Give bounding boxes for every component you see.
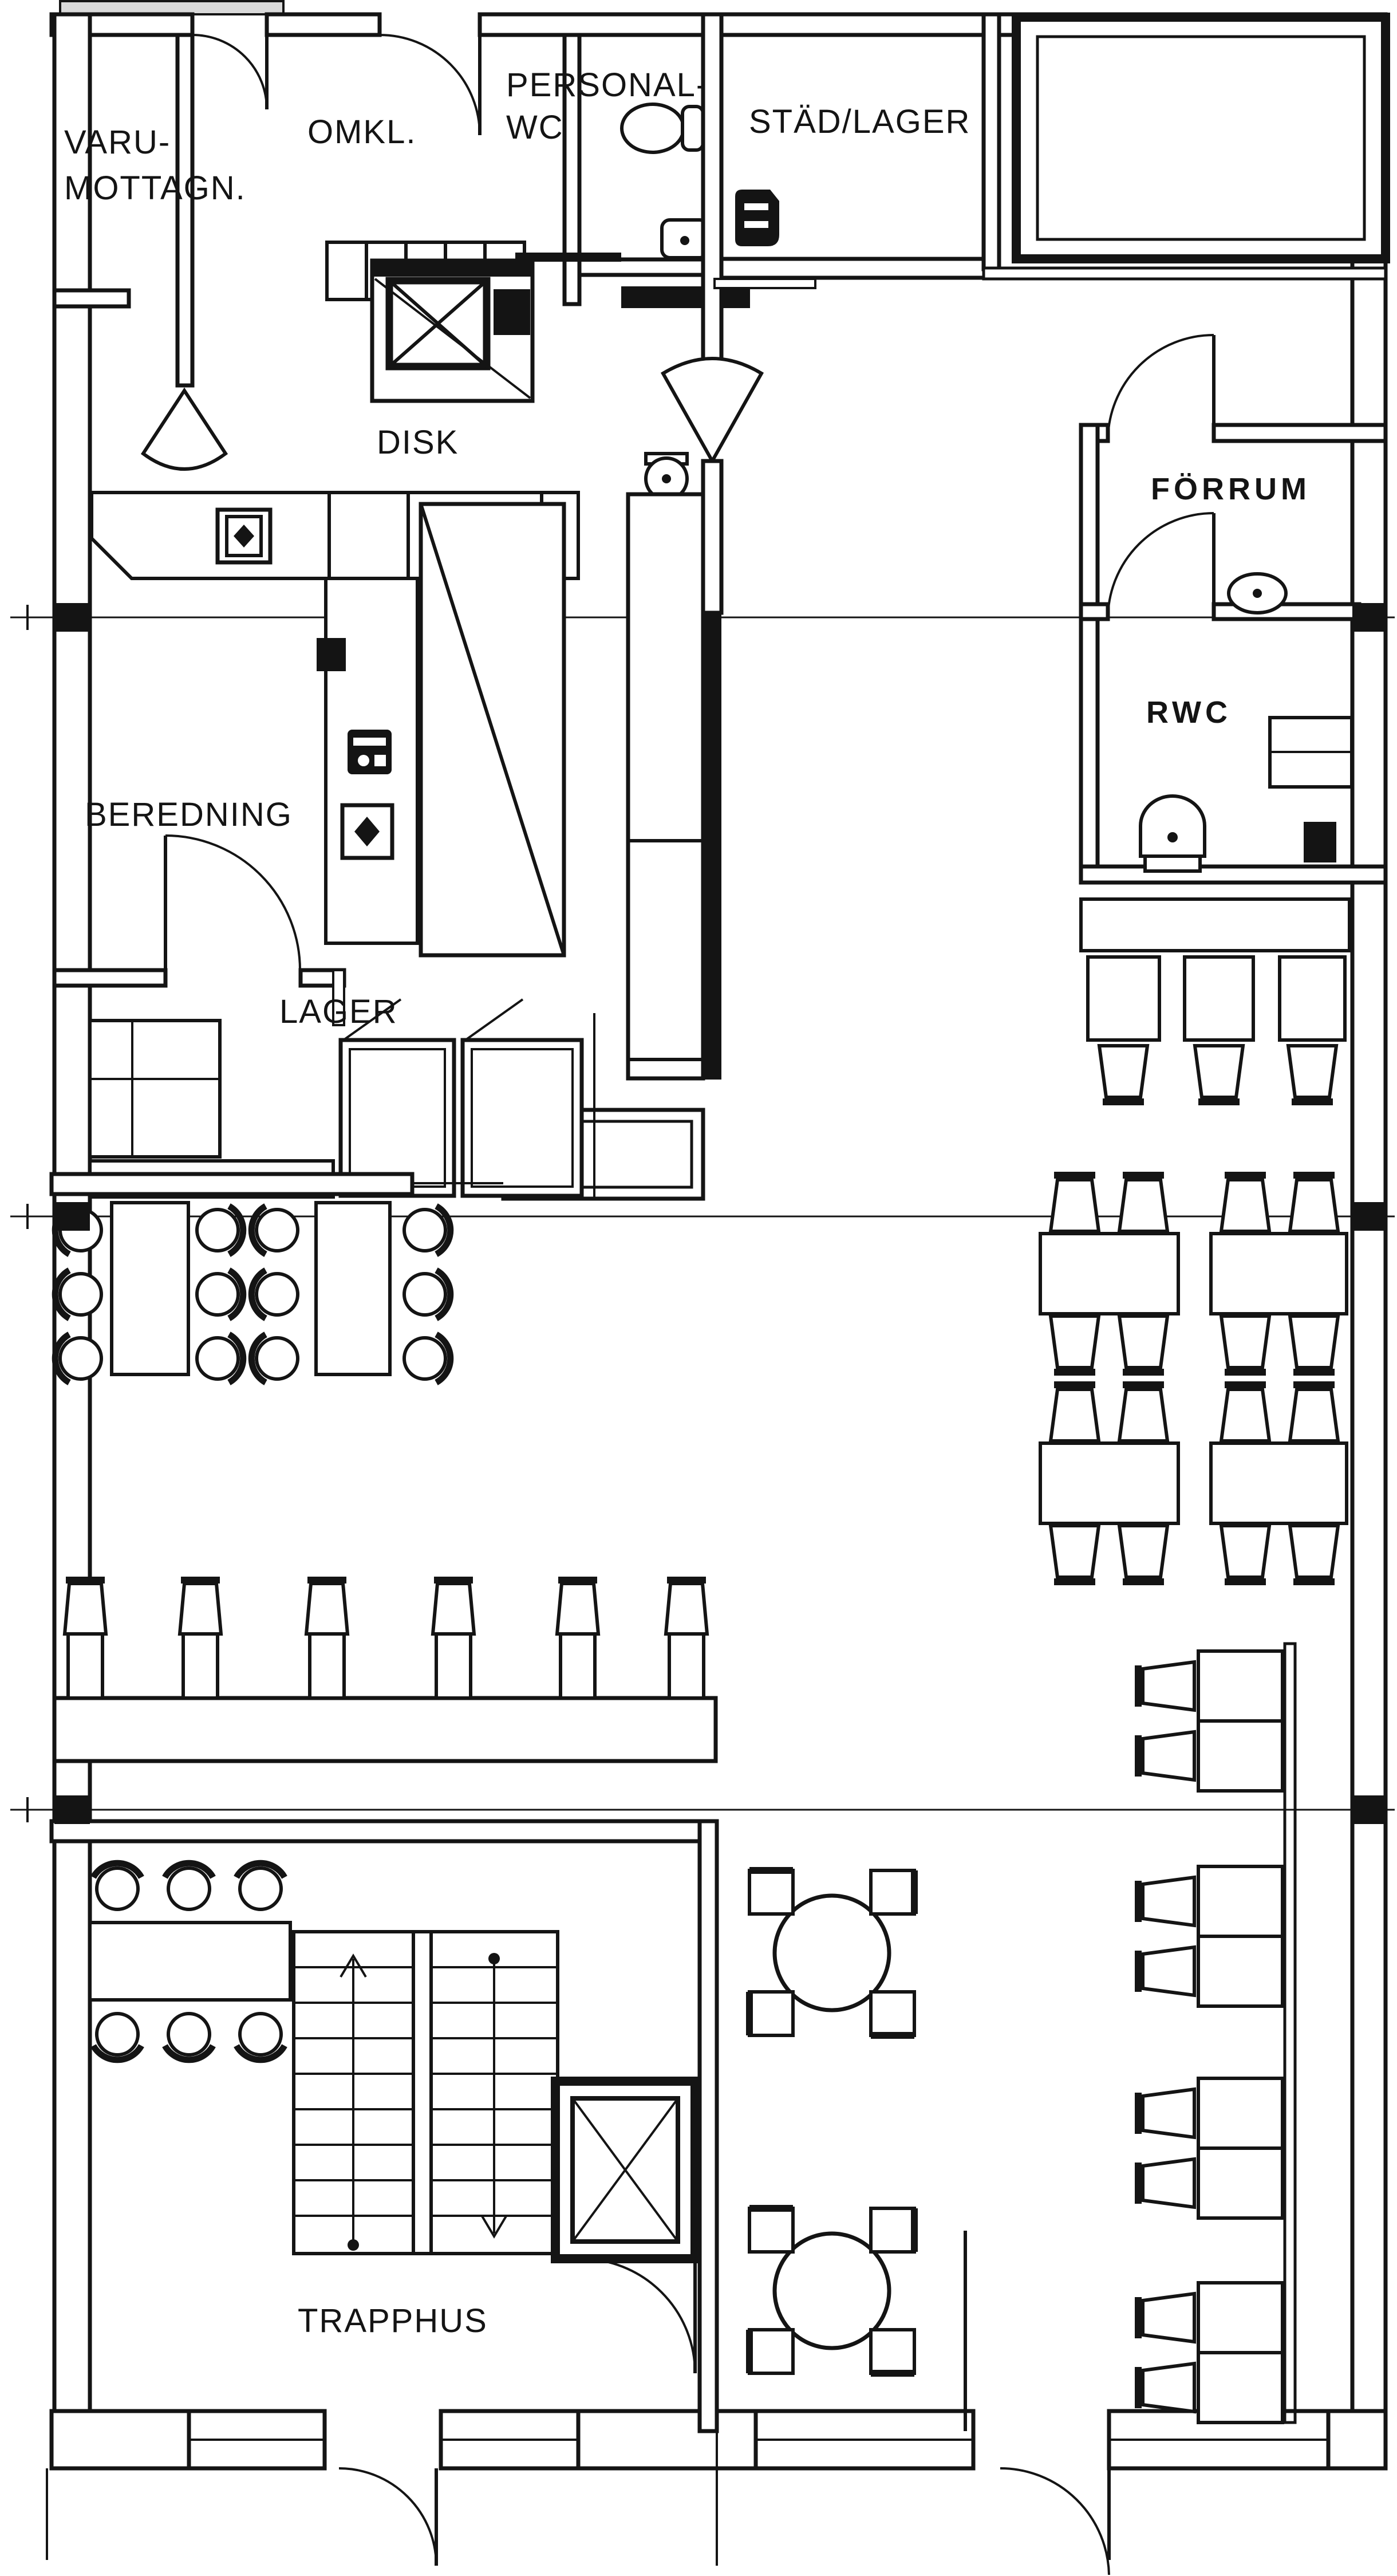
round-table-group <box>728 1849 936 2057</box>
zone-bar <box>54 1580 716 1761</box>
appliance-icon <box>218 510 270 562</box>
mop-sink-icon <box>735 190 779 246</box>
dumbwaiter-icon <box>372 261 532 401</box>
zone-dining-right <box>728 899 1349 2431</box>
table-icon <box>90 1923 290 2000</box>
toilet-icon <box>622 104 703 152</box>
table-icon <box>1040 1234 1178 1314</box>
table-icon <box>1211 1443 1347 1523</box>
label-trapphus: TRAPPHUS <box>298 2302 488 2339</box>
door-threshold <box>621 286 750 308</box>
void-room <box>984 17 1386 279</box>
wall-bench <box>1285 1644 1295 2423</box>
door-swing-icon <box>581 2259 695 2373</box>
label-personalwc-2: WC <box>506 109 564 146</box>
table-icon <box>1280 957 1345 1040</box>
label-beredning: BEREDNING <box>85 796 293 833</box>
zone-dining-left <box>55 1203 451 1382</box>
appliance-icon <box>348 730 392 774</box>
washbasin-icon <box>1229 574 1286 613</box>
double-swing-door-icon <box>143 391 226 469</box>
counter-icon <box>54 1698 716 1761</box>
floor-plan-drawing: VARU- MOTTAGN. OMKL. PERSONAL- <box>0 0 1397 2576</box>
elevator-icon <box>555 2081 695 2259</box>
changing-bench <box>1270 718 1352 787</box>
entrance-door <box>1000 2468 1109 2575</box>
door-swing-icon <box>1000 2468 1109 2575</box>
stairs-icon <box>294 1932 558 2254</box>
table-icon <box>1040 1443 1178 1523</box>
floor-drain <box>1304 822 1336 862</box>
label-lager: LAGER <box>279 993 398 1030</box>
table-icon <box>1185 957 1253 1040</box>
door-swing-icon <box>1108 335 1214 441</box>
floor-plan-page: VARU- MOTTAGN. OMKL. PERSONAL- <box>0 0 1397 2576</box>
exit-door <box>339 2468 436 2566</box>
chest-freezer-icon <box>463 999 582 1196</box>
table-icon <box>1088 957 1159 1040</box>
door-swing-icon <box>339 2468 436 2566</box>
room-rwc: RWC <box>1081 695 1386 883</box>
label-omkl: OMKL. <box>307 113 417 151</box>
shelf-unit <box>90 1021 333 1197</box>
room-stadlager: STÄD/LAGER <box>715 14 999 288</box>
interior-wall <box>52 1174 412 1194</box>
appliance-icon <box>342 805 392 858</box>
table-icon <box>112 1203 188 1374</box>
table-icon <box>316 1203 390 1374</box>
table-icon <box>1211 1234 1347 1314</box>
bottom-facade <box>47 2411 1386 2575</box>
door-swing-icon <box>165 836 300 970</box>
double-swing-door-icon <box>663 359 761 461</box>
label-forrum: FÖRRUM <box>1151 472 1311 506</box>
toilet-icon <box>1141 796 1205 871</box>
label-stadlager: STÄD/LAGER <box>749 103 970 140</box>
washbasin-icon <box>662 220 708 258</box>
round-table-group <box>728 2187 936 2395</box>
label-disk: DISK <box>377 424 459 461</box>
right-wall <box>1352 14 1386 2468</box>
door-swing-icon <box>192 35 267 109</box>
prep-table <box>421 504 564 955</box>
door-swing-icon <box>1108 513 1214 619</box>
label-personalwc-1: PERSONAL- <box>506 66 708 104</box>
label-varumottagn-2: MOTTAGN. <box>64 170 246 207</box>
room-trapphus: TRAPPHUS <box>52 1821 717 2431</box>
label-varumottagn-1: VARU- <box>64 124 171 161</box>
label-rwc: RWC <box>1146 695 1232 730</box>
room-forrum: FÖRRUM <box>1081 335 1386 883</box>
counter-icon <box>1081 899 1349 951</box>
